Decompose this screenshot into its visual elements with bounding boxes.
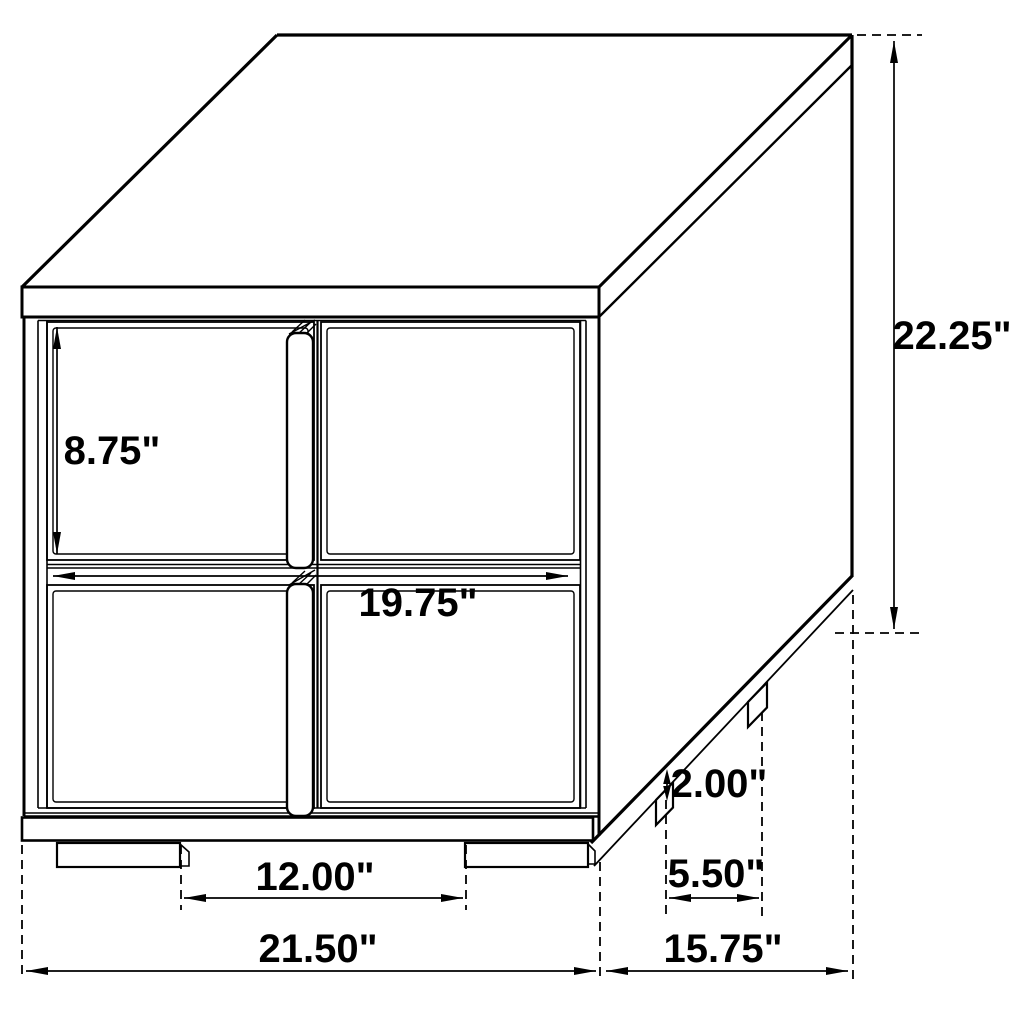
top-right-diagonal — [599, 35, 852, 287]
drawer-panel-upper-right — [321, 322, 580, 560]
dimension-label: 2.00" — [671, 762, 768, 806]
dimension-label: 8.75" — [64, 429, 161, 473]
dimension-label: 15.75" — [663, 927, 782, 971]
leg-front-left — [57, 843, 180, 867]
dimension-leg-height: 2.00" — [663, 762, 767, 806]
base-rail-front — [22, 818, 593, 841]
handle-upper — [287, 320, 316, 568]
drawer-panel-lower-left-bevel — [53, 591, 308, 802]
handle-lower — [287, 570, 316, 816]
dimension-front-leg-clearance: 12.00" — [181, 845, 466, 910]
top-front-face — [22, 287, 599, 317]
dimension-label: 5.50" — [668, 852, 765, 896]
drawer-panel-lower-left — [47, 585, 314, 808]
dimension-drawer-height: 8.75" — [57, 327, 160, 554]
handle-lower-bar — [287, 584, 313, 816]
side-panel-right — [591, 35, 853, 866]
line-drawing-canvas: 8.75" 19.75" 22.25" 12.00" 21.50" — [0, 0, 1024, 1024]
dimension-side-leg-spacing: 5.50" — [666, 712, 764, 917]
top-left-diagonal — [22, 35, 277, 287]
leg-side-back — [748, 683, 767, 728]
nightstand-dimension-diagram: 8.75" 19.75" 22.25" 12.00" 21.50" — [0, 0, 1024, 1024]
drawer-panel-upper-right-bevel — [327, 328, 574, 554]
dimension-label: 19.75" — [358, 581, 477, 625]
base-bottom-side-edge — [594, 590, 853, 866]
dimension-label: 12.00" — [255, 855, 374, 899]
dimension-label: 22.25" — [892, 314, 1011, 358]
dimension-label: 21.50" — [258, 927, 377, 971]
handle-upper-bar — [287, 333, 313, 568]
dimension-overall-height: 22.25" — [835, 35, 1012, 633]
side-top-edge — [599, 65, 852, 317]
top-panel — [22, 35, 852, 317]
leg-front-right — [465, 843, 588, 867]
